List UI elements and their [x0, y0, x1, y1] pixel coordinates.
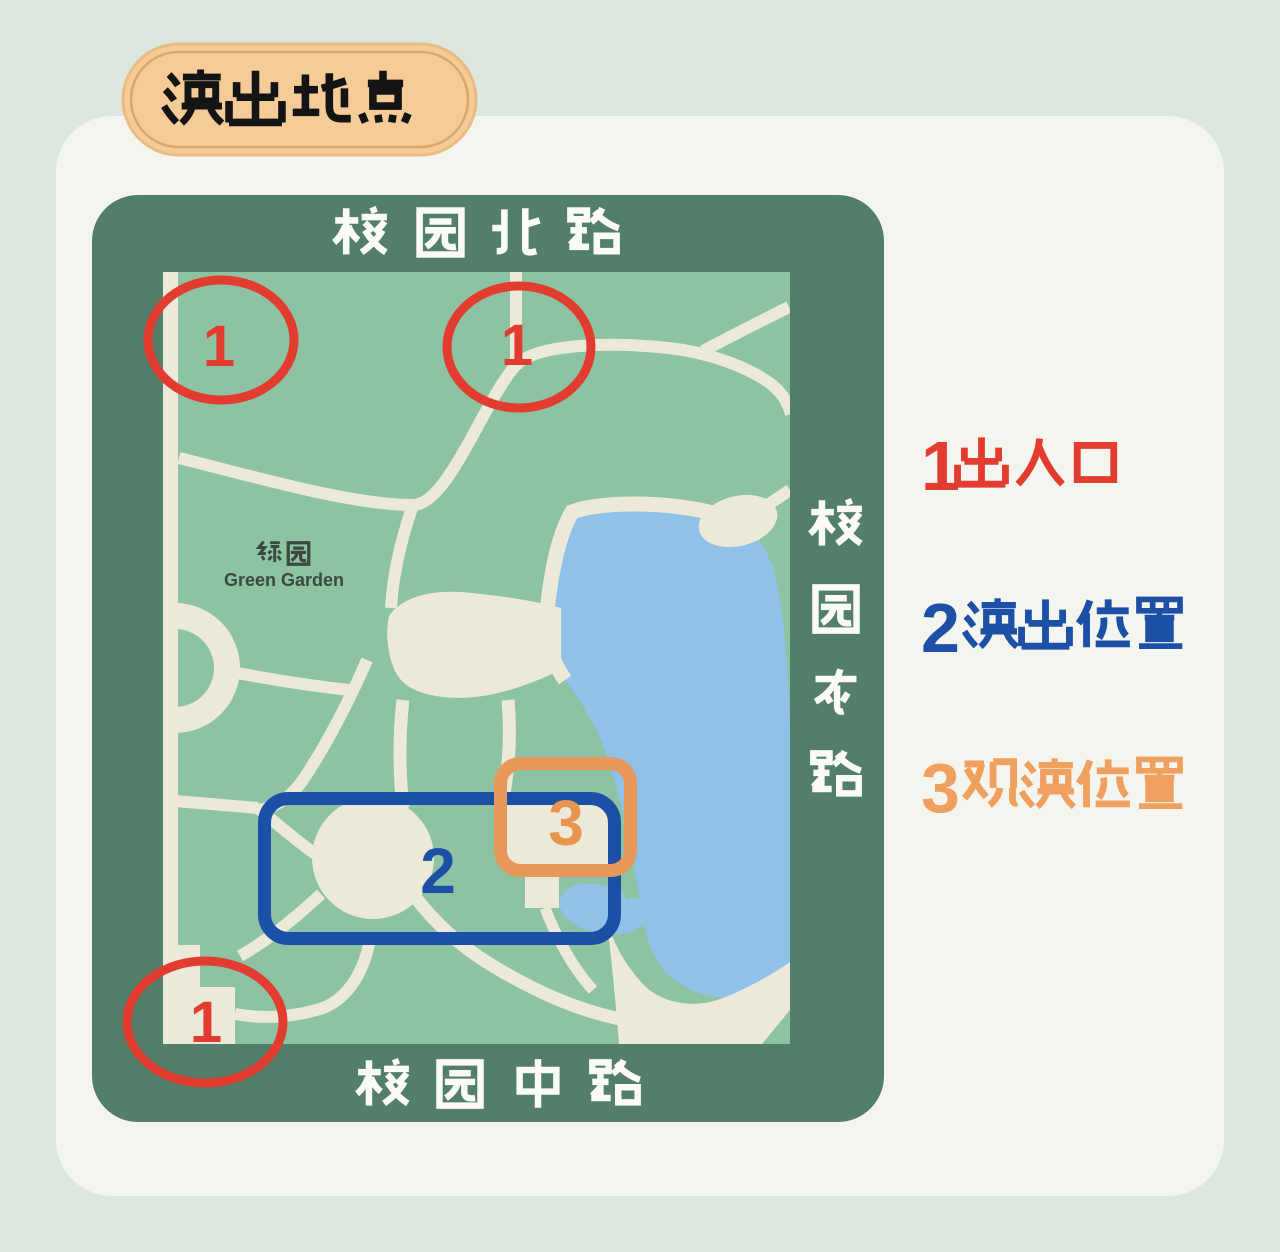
svg-text:1: 1	[921, 427, 960, 505]
svg-text:1: 1	[203, 314, 235, 379]
svg-text:2: 2	[921, 589, 960, 667]
svg-text:1: 1	[190, 990, 222, 1055]
svg-text:3: 3	[548, 787, 584, 859]
svg-text:1: 1	[501, 313, 533, 378]
svg-text:Green Garden: Green Garden	[224, 570, 344, 590]
svg-text:2: 2	[420, 835, 456, 907]
svg-text:3: 3	[921, 749, 960, 827]
